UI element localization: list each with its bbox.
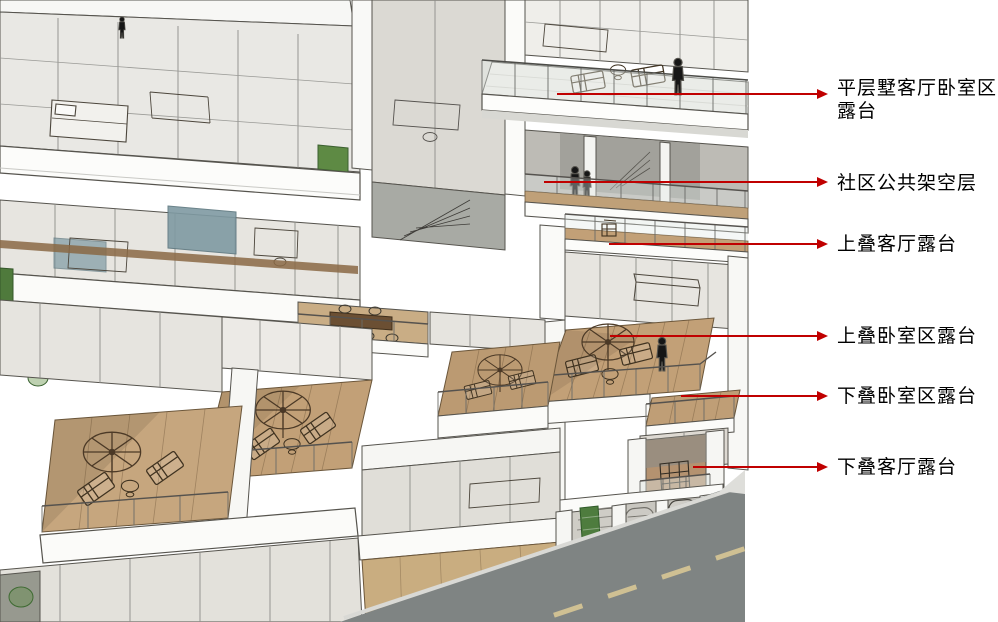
top-left-unit: [0, 0, 360, 200]
upper-living-balcony: [540, 214, 748, 330]
building-rendering: [0, 0, 998, 622]
community-open-floor: [525, 130, 748, 233]
top-middle-recess: [352, 0, 525, 250]
figure: 平层墅客厅卧室区露台社区公共架空层上叠客厅露台上叠卧室区露台下叠卧室区露台下叠客…: [0, 0, 998, 622]
bottom-left-terraces: [0, 300, 372, 622]
mid-umbrella-terrace: [438, 342, 560, 438]
